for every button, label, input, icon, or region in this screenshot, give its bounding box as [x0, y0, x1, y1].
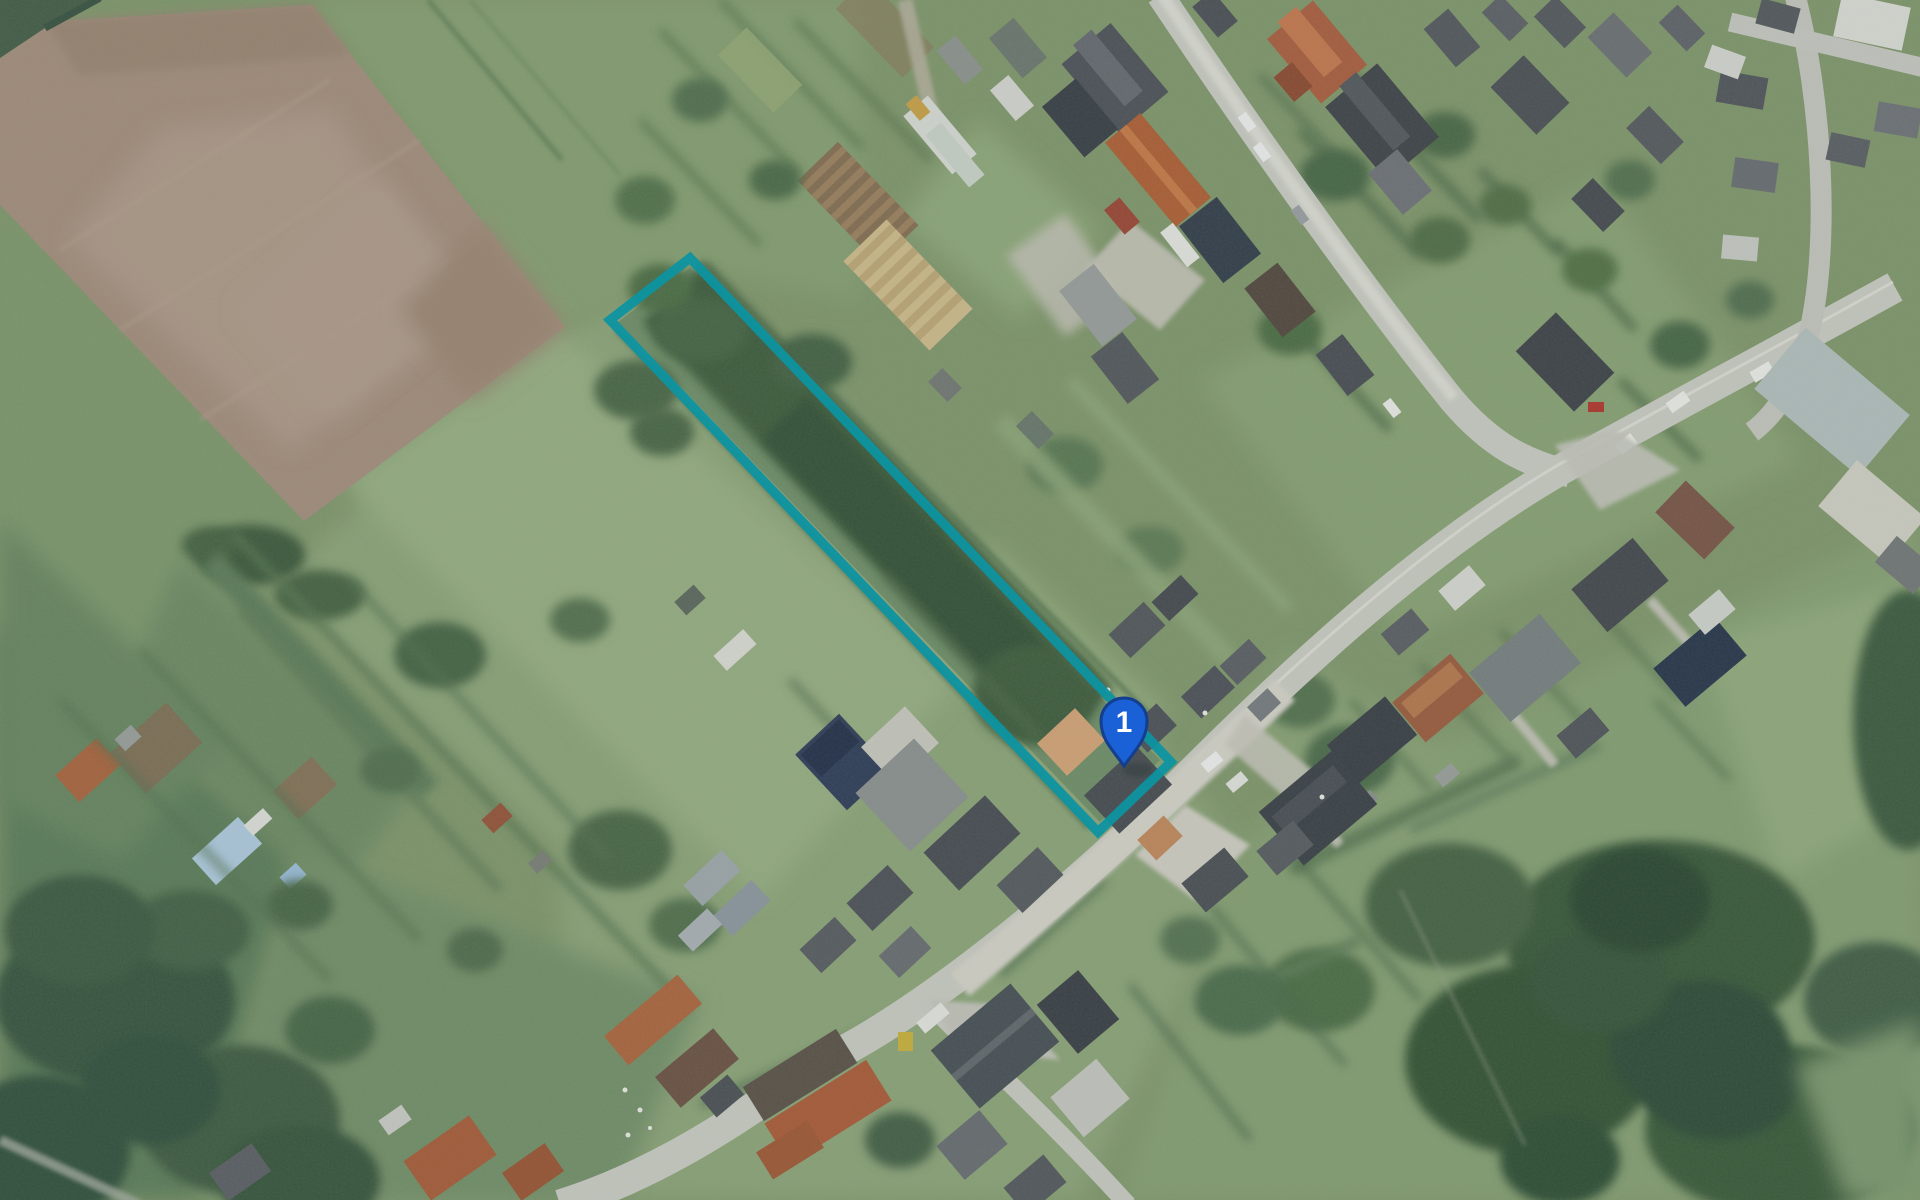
svg-text:1: 1: [1116, 706, 1133, 739]
